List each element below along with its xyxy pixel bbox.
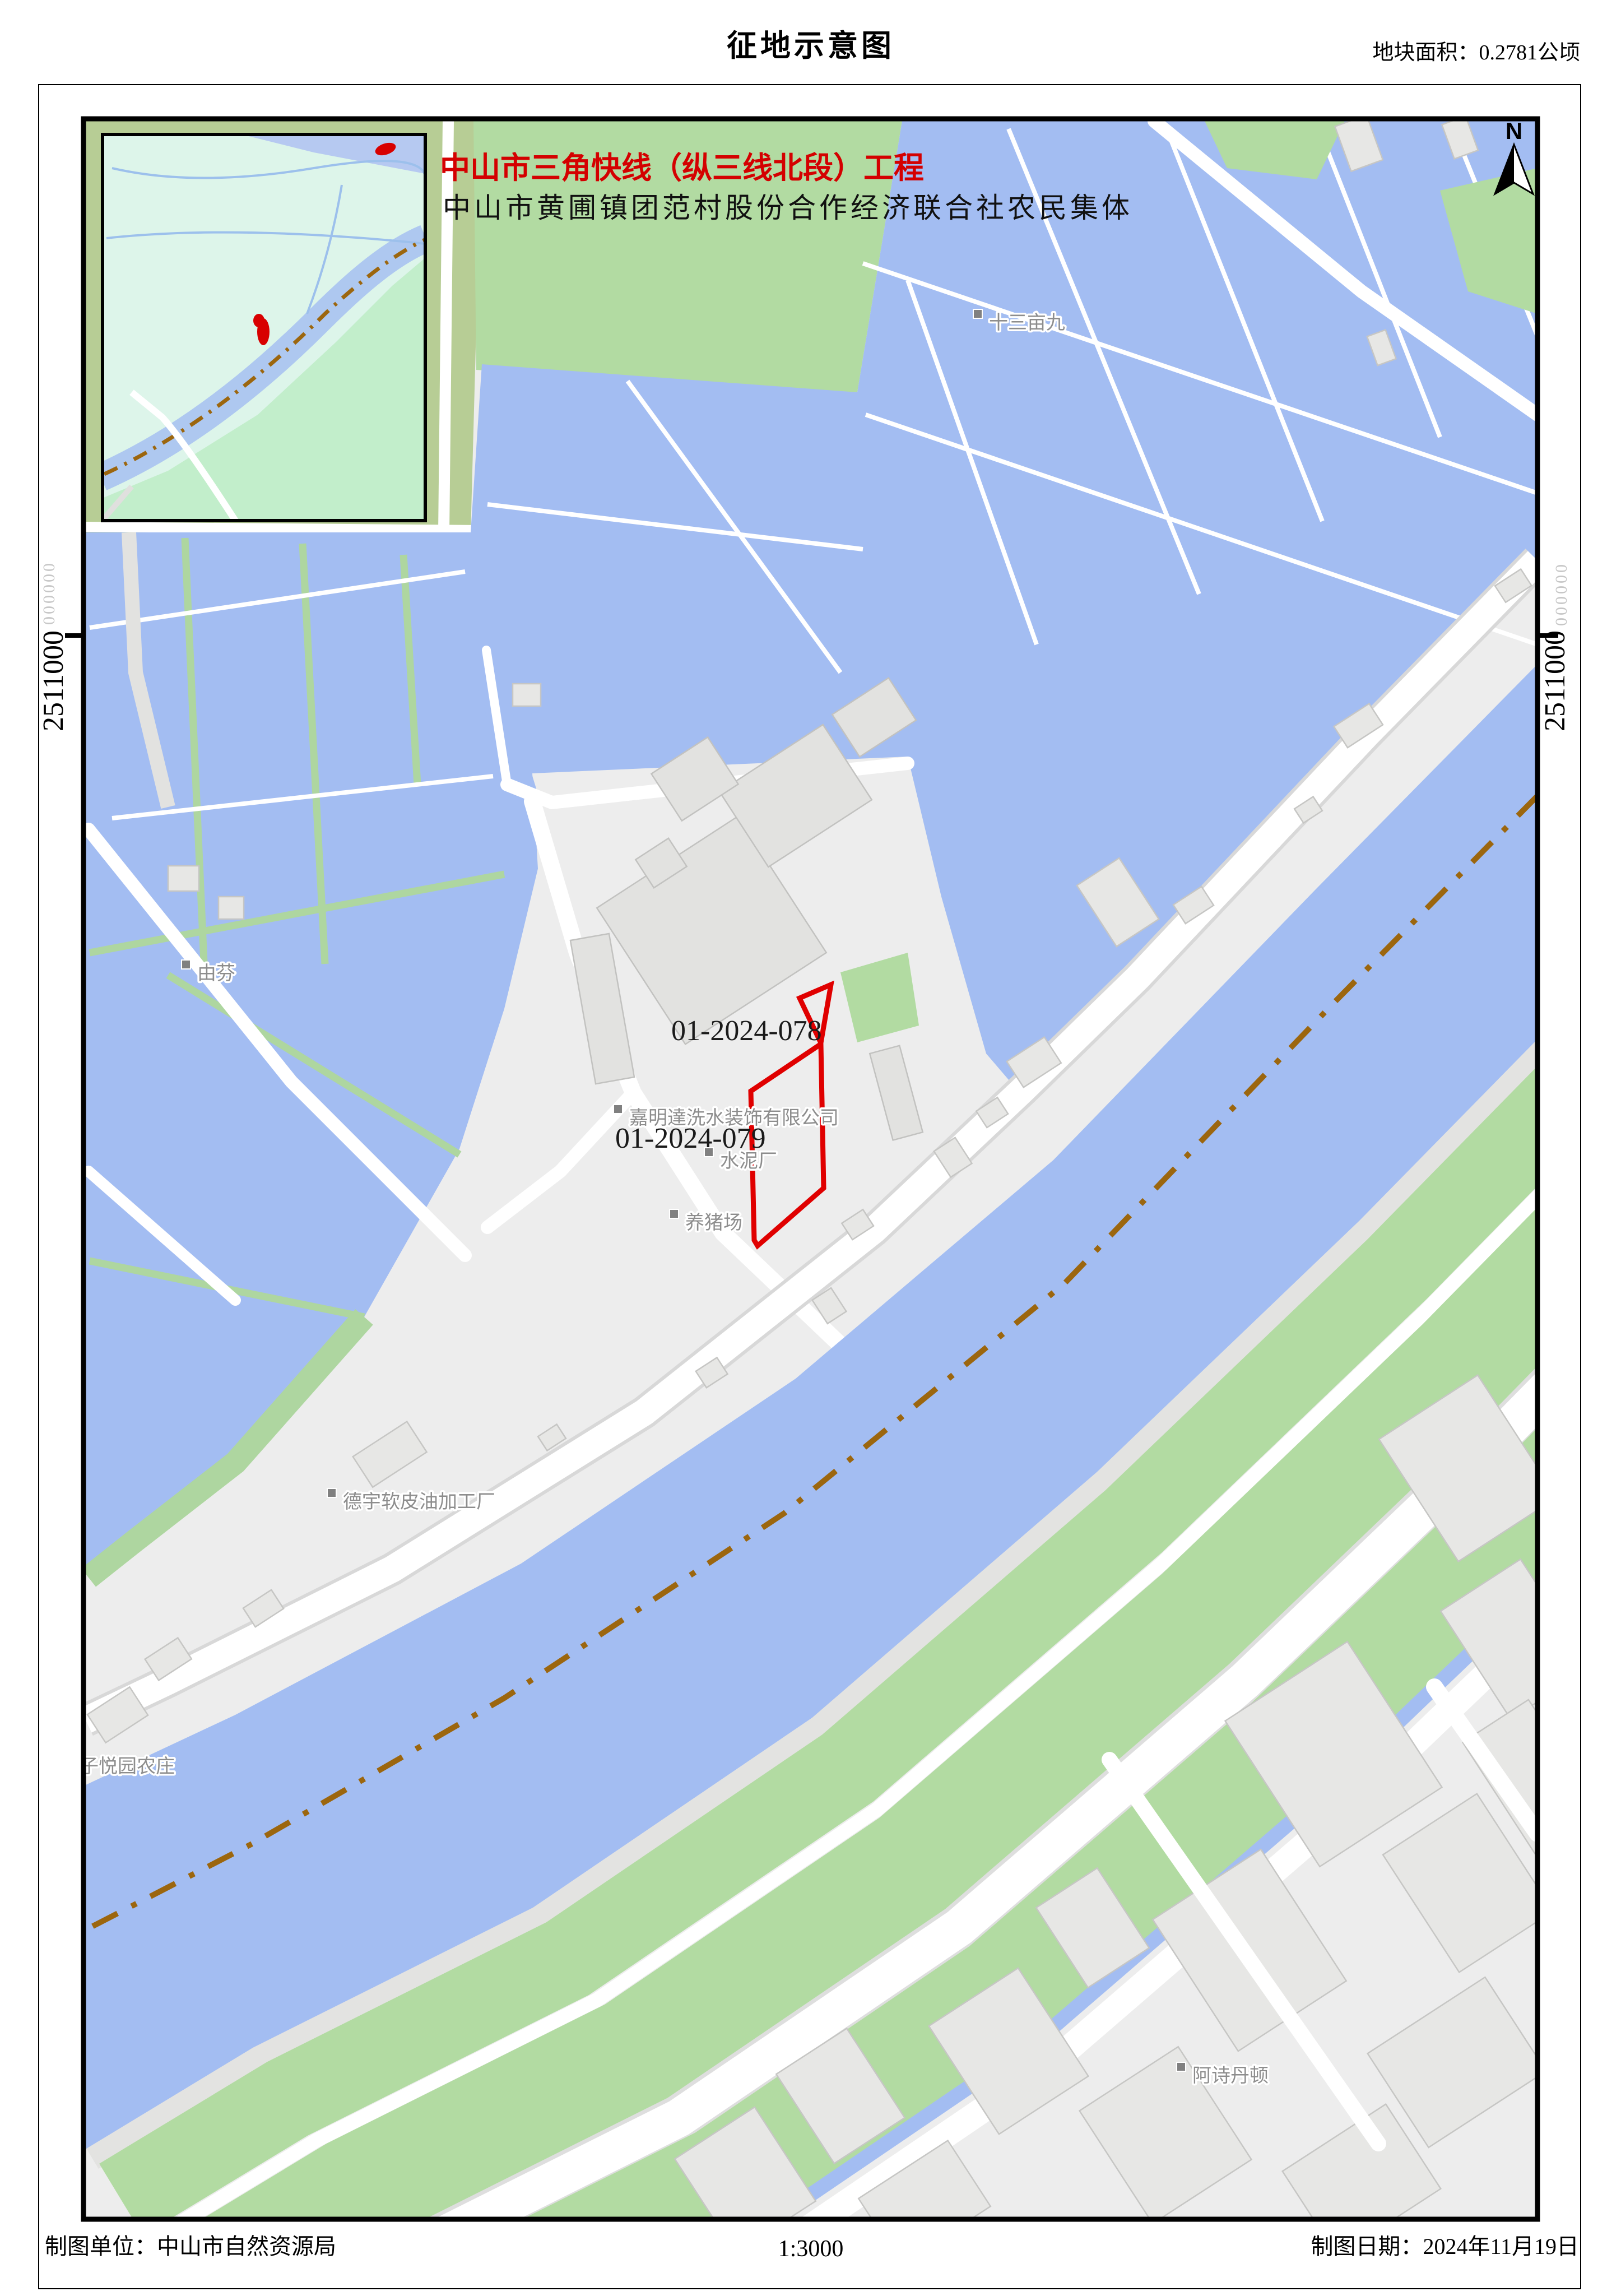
footer-scale: 1:3000 — [778, 2236, 844, 2262]
farm-road — [86, 527, 482, 530]
poi-marker — [328, 1489, 336, 1497]
poi-marker — [614, 1105, 622, 1113]
poi-label: 十三亩九 — [989, 312, 1065, 333]
north-label: N — [1506, 118, 1522, 144]
poi-label: 阿诗丹顿 — [1192, 2065, 1269, 2086]
building — [219, 897, 244, 919]
land-acquisition-sheet: 01-2024-078 01-2024-079 十三亩九 由芬 嘉明達洗水装饰有… — [0, 0, 1621, 2293]
area-label: 地块面积：0.2781公顷 — [1372, 41, 1580, 64]
poi-marker — [974, 310, 982, 318]
grid-label-faint-right: 000000 — [1552, 562, 1571, 626]
building — [513, 684, 541, 706]
poi-label: 子悦园农庄 — [80, 1756, 175, 1777]
poi-label: 德宇软皮油加工厂 — [343, 1491, 495, 1513]
footer-date: 制图日期：2024年11月19日 — [1311, 2234, 1579, 2259]
owner-title: 中山市黄圃镇团范村股份合作经济联合社农民集体 — [443, 192, 1133, 224]
parcel-078-label: 01-2024-078 — [671, 1015, 822, 1047]
footer-agency: 制图单位：中山市自然资源局 — [45, 2234, 336, 2259]
grid-label-right: 2511000 — [1539, 630, 1571, 731]
poi-label: 水泥厂 — [720, 1151, 777, 1172]
grid-label-faint-left: 000000 — [40, 561, 58, 625]
poi-marker — [1177, 2063, 1185, 2071]
site-blob — [253, 314, 264, 327]
grid-label-left: 2511000 — [38, 630, 69, 731]
inset-map — [101, 134, 426, 521]
poi-marker — [670, 1210, 678, 1218]
building — [168, 866, 199, 891]
poi-label: 嘉明達洗水装饰有限公司 — [629, 1107, 839, 1129]
poi-marker — [182, 961, 190, 968]
poi-marker — [705, 1148, 713, 1156]
poi-label: 养猪场 — [685, 1212, 742, 1233]
page-title: 征地示意图 — [727, 29, 895, 63]
poi-label: 由芬 — [197, 963, 235, 984]
project-title: 中山市三角快线（纵三线北段）工程 — [440, 151, 924, 185]
